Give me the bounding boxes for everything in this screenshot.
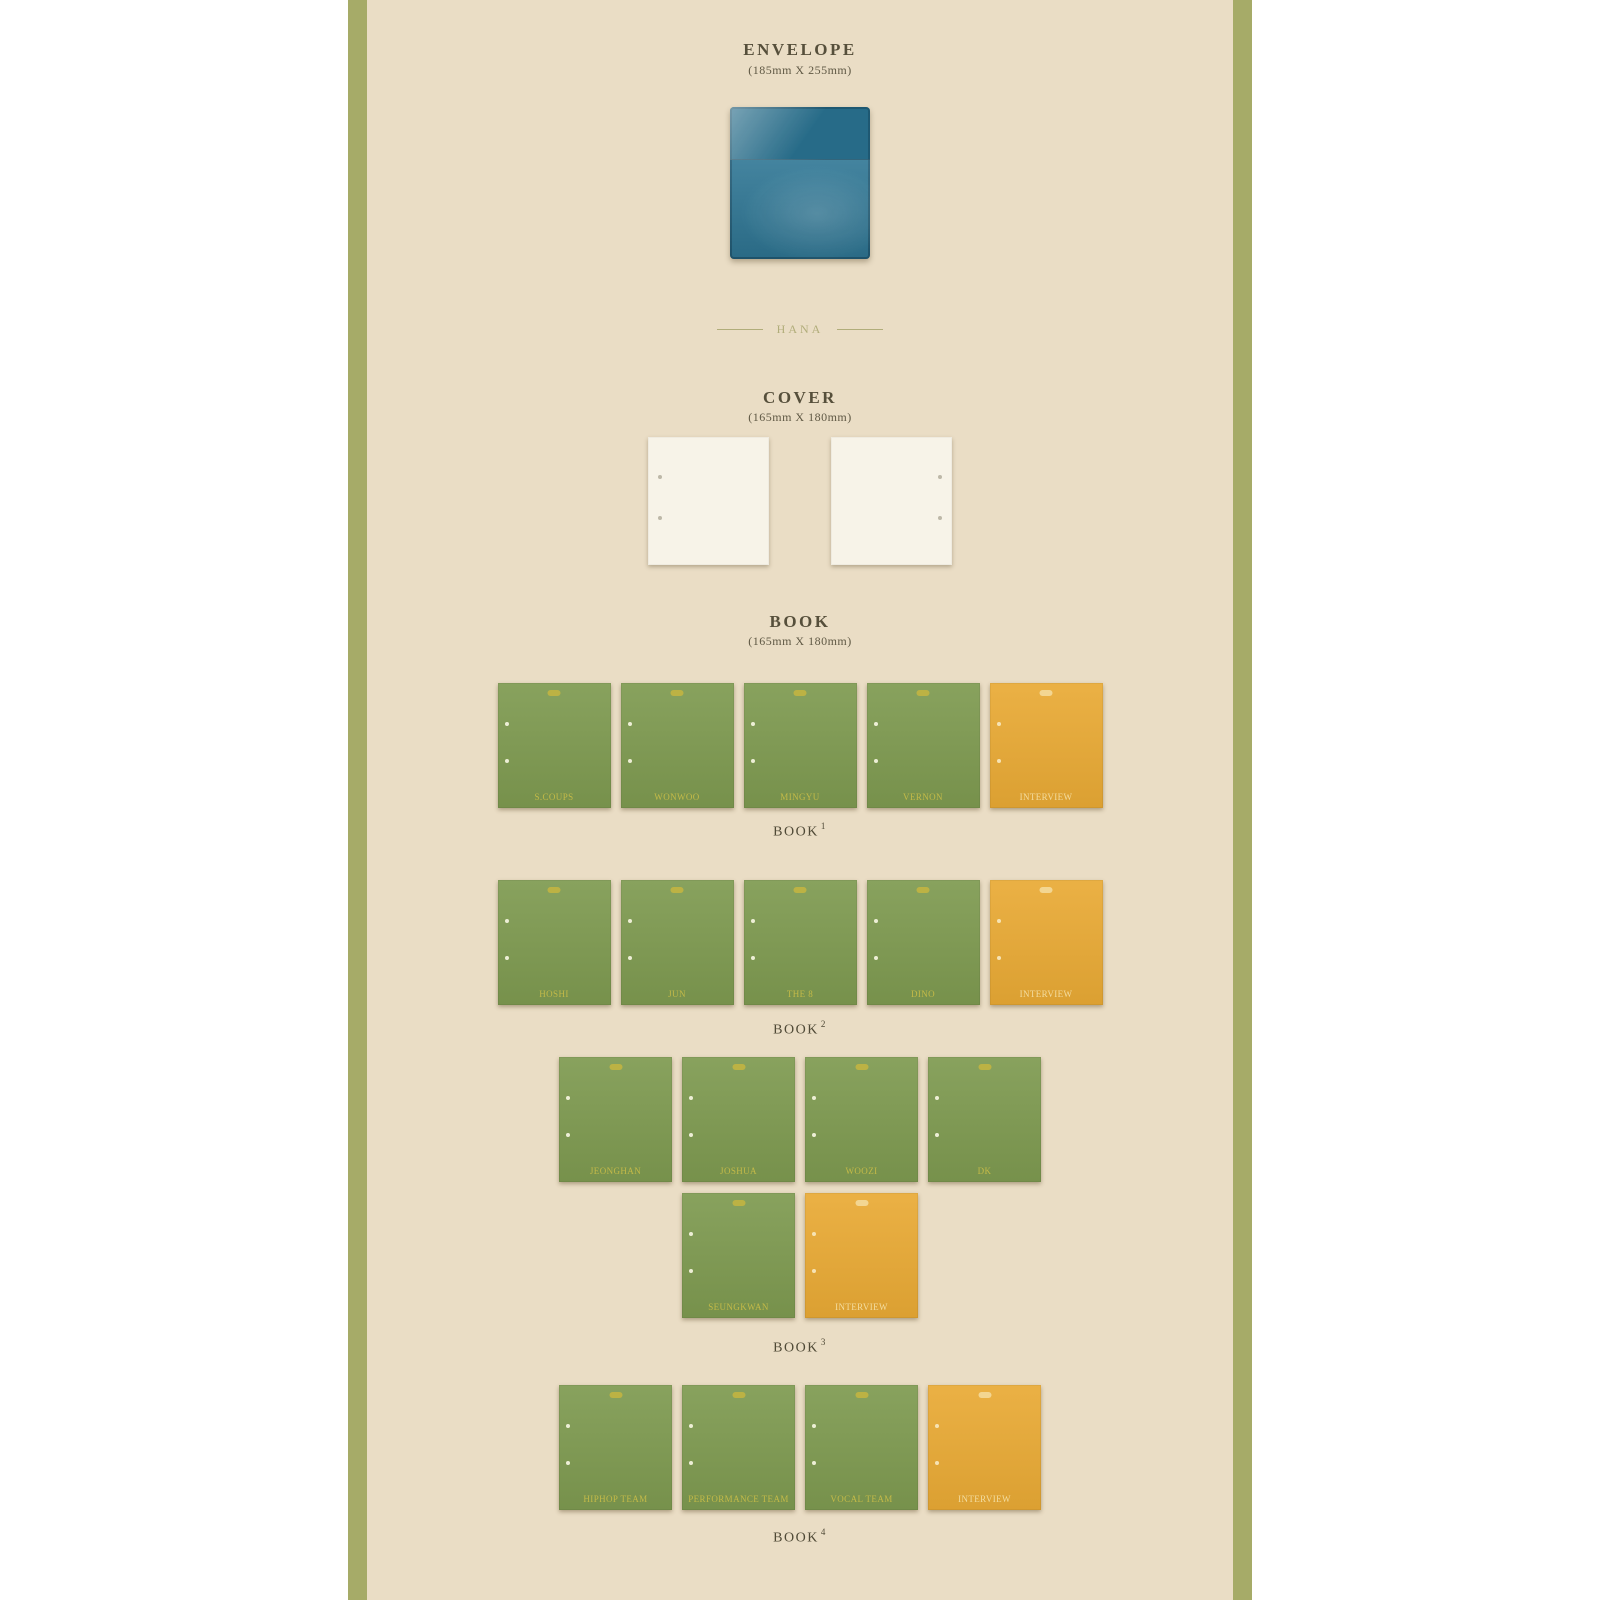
envelope-flap — [730, 107, 870, 160]
book4-row: HIPHOP TEAM PERFORMANCE TEAM VOCAL TEAM … — [367, 1385, 1233, 1510]
binding-hole-icon — [658, 516, 662, 520]
book-label: MINGYU — [746, 792, 855, 802]
caption-superscript: 1 — [821, 821, 827, 831]
book-top-mark — [978, 1392, 991, 1398]
book3-caption: BOOK3 — [367, 1338, 1233, 1357]
caption-superscript: 2 — [821, 1019, 827, 1029]
binding-hole-icon — [689, 1424, 693, 1428]
book1-row: S.COUPS WONWOO MINGYU VERNON — [367, 683, 1233, 808]
book-label: VOCAL TEAM — [807, 1494, 916, 1504]
envelope-title: ENVELOPE — [367, 40, 1233, 60]
book-top-mark — [855, 1064, 868, 1070]
binding-hole-icon — [874, 722, 878, 726]
caption-superscript: 3 — [821, 1337, 827, 1347]
book-performance-team: PERFORMANCE TEAM — [682, 1385, 795, 1510]
book-interview-1: INTERVIEW — [990, 683, 1103, 808]
binding-hole-icon — [566, 1096, 570, 1100]
book-label: HOSHI — [500, 989, 609, 999]
binding-hole-icon — [812, 1269, 816, 1273]
book-top-mark — [855, 1200, 868, 1206]
binding-hole-icon — [935, 1424, 939, 1428]
book-label: DINO — [869, 989, 978, 999]
binding-hole-icon — [751, 956, 755, 960]
binding-hole-icon — [935, 1096, 939, 1100]
binding-hole-icon — [505, 919, 509, 923]
cover-title: COVER — [367, 388, 1233, 408]
book3-row-lower: SEUNGKWAN INTERVIEW — [367, 1193, 1233, 1318]
book-hoshi: HOSHI — [498, 880, 611, 1005]
binding-hole-icon — [628, 722, 632, 726]
book-top-mark — [732, 1064, 745, 1070]
book-label: WOOZI — [807, 1166, 916, 1176]
book-vocal-team: VOCAL TEAM — [805, 1385, 918, 1510]
book-top-mark — [1040, 690, 1053, 696]
book-dk: DK — [928, 1057, 1041, 1182]
cover-front — [648, 437, 769, 565]
binding-hole-icon — [689, 1232, 693, 1236]
book-label: VERNON — [869, 792, 978, 802]
envelope-row — [367, 107, 1233, 259]
book-mingyu: MINGYU — [744, 683, 857, 808]
cover-row — [367, 437, 1233, 565]
book-top-mark — [794, 887, 807, 893]
divider-line-left — [717, 329, 763, 330]
caption-text: BOOK — [773, 1341, 819, 1356]
book-top-mark — [609, 1392, 622, 1398]
book-label: JOSHUA — [684, 1166, 793, 1176]
book-top-mark — [855, 1392, 868, 1398]
book-top-mark — [732, 1392, 745, 1398]
book-label: JEONGHAN — [561, 1166, 670, 1176]
book2-caption: BOOK2 — [367, 1020, 1233, 1039]
cover-back — [831, 437, 952, 565]
book-vernon: VERNON — [867, 683, 980, 808]
caption-text: BOOK — [773, 1531, 819, 1546]
binding-hole-icon — [505, 956, 509, 960]
book-seungkwan: SEUNGKWAN — [682, 1193, 795, 1318]
binding-hole-icon — [874, 956, 878, 960]
binding-hole-icon — [997, 919, 1001, 923]
binding-hole-icon — [812, 1096, 816, 1100]
binding-hole-icon — [689, 1461, 693, 1465]
binding-hole-icon — [812, 1133, 816, 1137]
binding-hole-icon — [751, 722, 755, 726]
left-border-stripe — [348, 0, 367, 1600]
book-label: THE 8 — [746, 989, 855, 999]
book-label: HIPHOP TEAM — [561, 1494, 670, 1504]
book-label: INTERVIEW — [930, 1494, 1039, 1504]
caption-text: BOOK — [773, 1023, 819, 1038]
book-top-mark — [917, 887, 930, 893]
right-border-stripe — [1233, 0, 1252, 1600]
envelope-dimensions: (185mm X 255mm) — [367, 63, 1233, 78]
cover-dimensions: (165mm X 180mm) — [367, 410, 1233, 425]
book-top-mark — [1040, 887, 1053, 893]
binding-hole-icon — [566, 1133, 570, 1137]
book-hiphop-team: HIPHOP TEAM — [559, 1385, 672, 1510]
book3-row-upper: JEONGHAN JOSHUA WOOZI DK — [367, 1057, 1233, 1182]
binding-hole-icon — [566, 1424, 570, 1428]
book-top-mark — [732, 1200, 745, 1206]
binding-hole-icon — [874, 919, 878, 923]
binding-hole-icon — [628, 956, 632, 960]
book2-row: HOSHI JUN THE 8 DINO — [367, 880, 1233, 1005]
envelope-image — [730, 107, 870, 259]
binding-hole-icon — [658, 475, 662, 479]
binding-hole-icon — [938, 516, 942, 520]
envelope-body — [730, 159, 870, 259]
book-label: DK — [930, 1166, 1039, 1176]
book4-caption: BOOK4 — [367, 1528, 1233, 1547]
book-top-mark — [671, 887, 684, 893]
book-joshua: JOSHUA — [682, 1057, 795, 1182]
binding-hole-icon — [628, 919, 632, 923]
binding-hole-icon — [812, 1232, 816, 1236]
binding-hole-icon — [997, 759, 1001, 763]
book-label: JUN — [623, 989, 732, 999]
caption-superscript: 4 — [821, 1527, 827, 1537]
binding-hole-icon — [812, 1424, 816, 1428]
binding-hole-icon — [689, 1096, 693, 1100]
book-label: PERFORMANCE TEAM — [684, 1494, 793, 1504]
binding-hole-icon — [505, 759, 509, 763]
book-the8: THE 8 — [744, 880, 857, 1005]
binding-hole-icon — [935, 1461, 939, 1465]
book-top-mark — [609, 1064, 622, 1070]
book-label: INTERVIEW — [992, 989, 1101, 999]
caption-text: BOOK — [773, 825, 819, 840]
book-top-mark — [978, 1064, 991, 1070]
binding-hole-icon — [874, 759, 878, 763]
book-title: BOOK — [367, 612, 1233, 632]
book-dimensions: (165mm X 180mm) — [367, 634, 1233, 649]
book-interview-2: INTERVIEW — [990, 880, 1103, 1005]
book-label: INTERVIEW — [992, 792, 1101, 802]
book-top-mark — [794, 690, 807, 696]
book-label: INTERVIEW — [807, 1302, 916, 1312]
book-label: WONWOO — [623, 792, 732, 802]
binding-hole-icon — [997, 956, 1001, 960]
book-top-mark — [917, 690, 930, 696]
book-top-mark — [671, 690, 684, 696]
book-interview-4: INTERVIEW — [928, 1385, 1041, 1510]
packaging-panel: ENVELOPE (185mm X 255mm) HANA COVER (165… — [348, 0, 1252, 1600]
book1-caption: BOOK1 — [367, 822, 1233, 841]
book-interview-3: INTERVIEW — [805, 1193, 918, 1318]
binding-hole-icon — [997, 722, 1001, 726]
binding-hole-icon — [689, 1133, 693, 1137]
book-wonwoo: WONWOO — [621, 683, 734, 808]
album-packaging-detail-image: ENVELOPE (185mm X 255mm) HANA COVER (165… — [0, 0, 1600, 1600]
binding-hole-icon — [566, 1461, 570, 1465]
book-dino: DINO — [867, 880, 980, 1005]
book-jeonghan: JEONGHAN — [559, 1057, 672, 1182]
binding-hole-icon — [938, 475, 942, 479]
book-label: SEUNGKWAN — [684, 1302, 793, 1312]
book-label: S.COUPS — [500, 792, 609, 802]
binding-hole-icon — [812, 1461, 816, 1465]
binding-hole-icon — [935, 1133, 939, 1137]
book-jun: JUN — [621, 880, 734, 1005]
book-top-mark — [548, 887, 561, 893]
version-label: HANA — [777, 322, 824, 337]
binding-hole-icon — [751, 759, 755, 763]
book-top-mark — [548, 690, 561, 696]
binding-hole-icon — [751, 919, 755, 923]
divider-line-right — [837, 329, 883, 330]
version-divider: HANA — [367, 322, 1233, 337]
binding-hole-icon — [628, 759, 632, 763]
binding-hole-icon — [505, 722, 509, 726]
binding-hole-icon — [689, 1269, 693, 1273]
book-scoups: S.COUPS — [498, 683, 611, 808]
book-woozi: WOOZI — [805, 1057, 918, 1182]
